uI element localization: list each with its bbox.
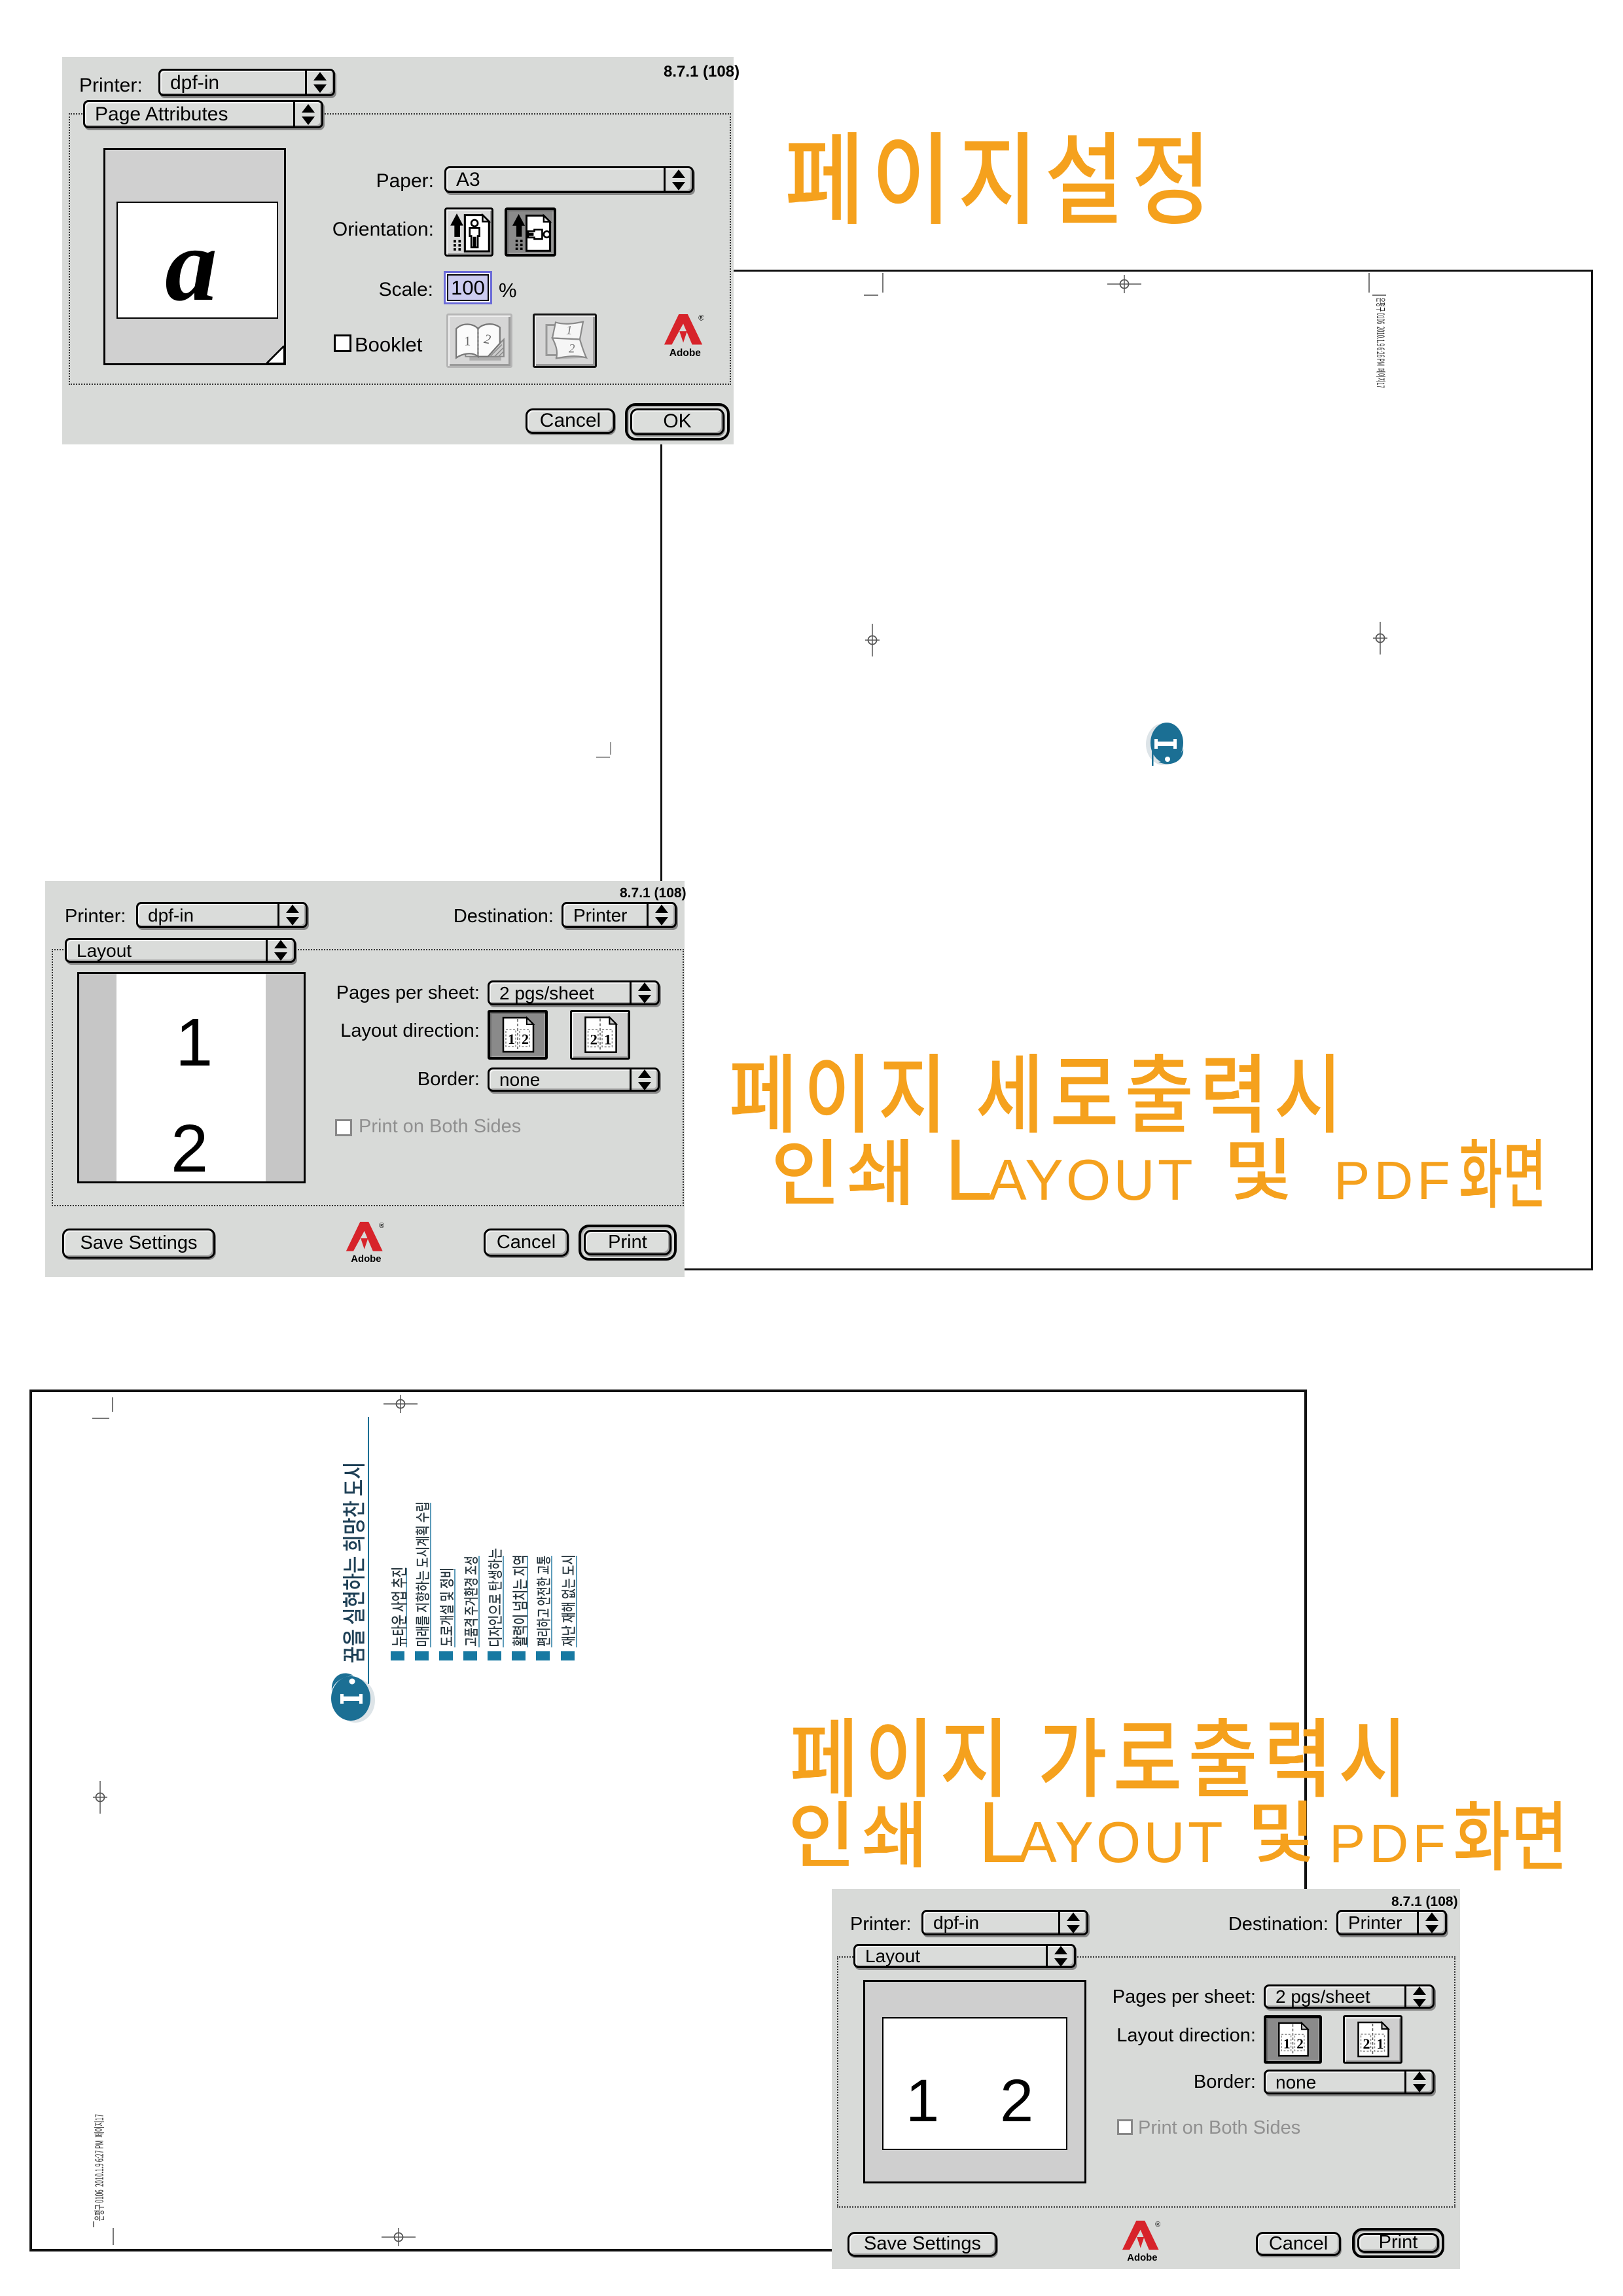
svg-text:2: 2 bbox=[569, 342, 575, 356]
svg-text:PDF: PDF bbox=[1329, 1813, 1450, 1874]
svg-text:®: ® bbox=[698, 314, 704, 323]
svg-text:L: L bbox=[944, 1122, 993, 1219]
svg-text:2: 2 bbox=[590, 1031, 597, 1047]
svg-text:Adobe: Adobe bbox=[1127, 2253, 1157, 2263]
svg-text:1: 1 bbox=[508, 1031, 515, 1047]
svg-text:1: 1 bbox=[566, 324, 573, 338]
svg-text:1: 1 bbox=[464, 334, 471, 349]
svg-text:®: ® bbox=[1155, 2221, 1160, 2229]
svg-text:2: 2 bbox=[522, 1031, 529, 1047]
svg-text:AYOUT: AYOUT bbox=[988, 1147, 1196, 1212]
svg-text:®: ® bbox=[379, 1222, 383, 1230]
svg-text:1: 1 bbox=[1377, 2036, 1384, 2052]
svg-text:AYOUT: AYOUT bbox=[1018, 1810, 1226, 1874]
svg-text:1: 1 bbox=[1283, 2036, 1291, 2052]
svg-text:Adobe: Adobe bbox=[351, 1254, 381, 1265]
svg-text:PDF: PDF bbox=[1334, 1150, 1454, 1211]
svg-text:1: 1 bbox=[604, 1031, 611, 1047]
svg-text:Adobe: Adobe bbox=[669, 348, 702, 359]
svg-text:2: 2 bbox=[1363, 2036, 1370, 2052]
svg-text:2: 2 bbox=[1296, 2036, 1304, 2052]
